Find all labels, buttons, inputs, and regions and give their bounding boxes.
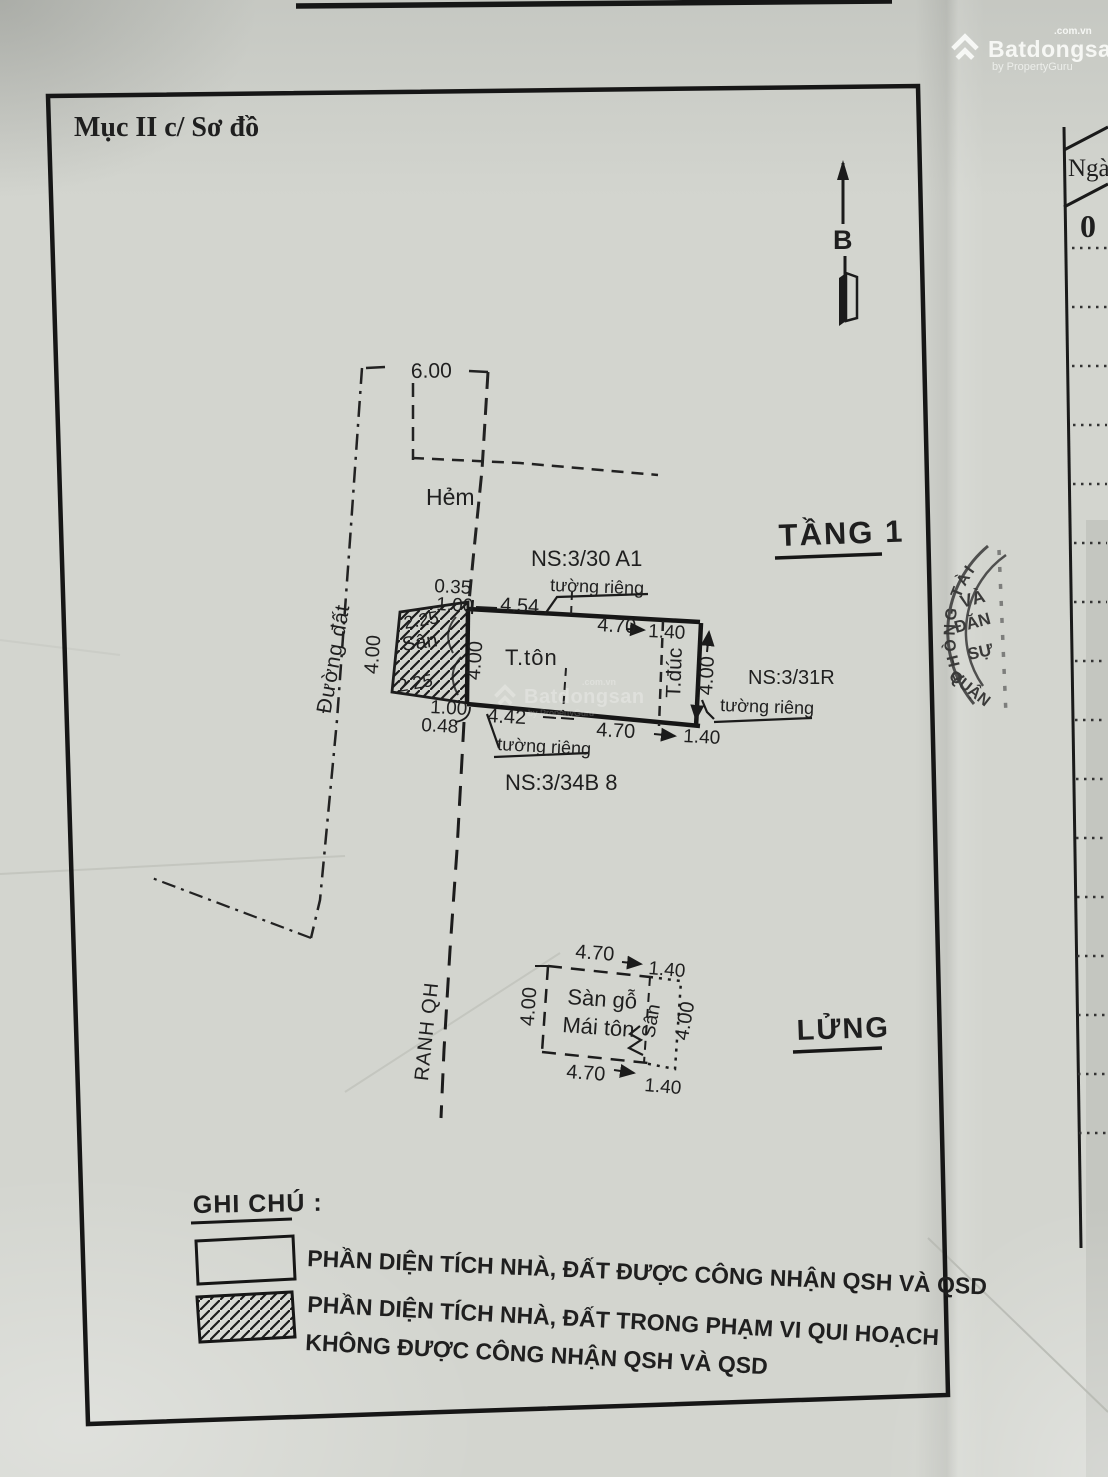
north-arrow-head [837, 160, 849, 180]
section-title: Mục II c/ Sơ đồ [74, 112, 259, 143]
mezzanine-plan: Sàn gỗ Mái tôn Sân 4.70 1.40 4.70 1.40 4… [517, 941, 700, 1099]
side-table-digit: 0 [1080, 208, 1096, 244]
floor1-title: TẦNG 1 [778, 514, 905, 553]
dim-left: 4.00 [361, 634, 386, 674]
dim-top1: 4.54 [500, 594, 540, 618]
stamp-smudge [999, 550, 1006, 715]
mezzanine-title: LỬNG [796, 1010, 890, 1047]
legend-swatch-plain [196, 1236, 295, 1284]
wall-right-label: tường riêng [720, 695, 815, 718]
north-label: B [833, 225, 853, 255]
alley-cross-line [412, 458, 658, 475]
mezz-room-line1: Sàn gỗ [567, 984, 638, 1014]
neighbor-right-label: NS:3/31R [748, 667, 835, 689]
side-table: Ngà 0 [1064, 127, 1108, 1248]
planning-boundary-line [441, 722, 464, 1118]
compass: B [833, 160, 857, 326]
mezz-dim-top2: 1.40 [648, 958, 687, 982]
mezz-dim-bot2: 1.40 [644, 1075, 683, 1099]
dim-top2: 4.70 [597, 614, 637, 638]
batdongsan-watermark-center: .com.vn Batdongsan by PropertyGuru [490, 676, 640, 718]
mezz-dim-top1: 4.70 [575, 941, 615, 966]
diagram-frame [48, 86, 948, 1424]
legend: GHI CHÚ : PHẦN DIỆN TÍCH NHÀ, ĐẤT ĐƯỢC C… [191, 1187, 987, 1379]
batdongsan-logo-icon [946, 28, 984, 66]
neighbor-bottom-label: NS:3/34B 8 [505, 770, 618, 795]
mezzanine-title-underline [793, 1048, 882, 1052]
side-table-header: Ngà [1068, 155, 1108, 182]
top-rule [296, 1, 892, 6]
site-plan-floor1: NS:3/30 A1 tường riêng 0.35 1.00 4.54 4.… [361, 546, 835, 795]
legend-title: GHI CHÚ : [193, 1187, 323, 1219]
brand-byline: by PropertyGuru [992, 61, 1073, 73]
dim-right: 4.00 [695, 656, 719, 696]
mezz-yard-label: Sân [638, 1003, 665, 1040]
official-stamp: PHÒNG TÀI VÀ ĐĂN SỰ QUẬN [940, 537, 1016, 715]
alley-label: Hẻm [426, 484, 475, 510]
diagram-canvas: Mục II c/ Sơ đồ Ngà 0 B [0, 0, 1108, 1477]
wall-top-label: tường riêng [550, 575, 645, 598]
room-main-label: T.tôn [505, 645, 558, 670]
stamp-line4: QUẬN [946, 666, 995, 710]
road-branch-line [152, 878, 311, 938]
floor1-title-underline [775, 554, 882, 558]
brand-byline: by PropertyGuru [528, 708, 594, 718]
brand-name: Batdongsan [988, 36, 1108, 63]
neighbor-top-label: NS:3/30 A1 [531, 546, 642, 571]
dim-bot3: 1.40 [683, 726, 721, 749]
legend-swatch-hatched [197, 1292, 295, 1342]
compass-fletch-outline [846, 273, 857, 321]
road-label: Đường đất [313, 603, 355, 716]
mezz-dim-right: 4.00 [671, 1000, 699, 1042]
batdongsan-watermark-top: .com.vn Batdongsan by PropertyGuru [946, 26, 1106, 72]
brand-name: Batdongsan [524, 686, 645, 709]
dim-bot2: 4.70 [596, 719, 636, 743]
alley-width-tick-l [366, 367, 385, 368]
room-right-label: T.đúc [662, 647, 687, 698]
alley-width-label: 6.00 [411, 359, 452, 383]
scanned-cadastral-sheet: Mục II c/ Sơ đồ Ngà 0 B [0, 0, 1108, 1477]
alley-width-tick-r [469, 371, 488, 372]
dim-off-bot2: 0.48 [421, 715, 459, 738]
dim-top3: 1.40 [648, 621, 686, 644]
dim-off-top2: 1.00 [436, 594, 474, 617]
legend-item1-text: PHẦN DIỆN TÍCH NHÀ, ĐẤT ĐƯỢC CÔNG NHẬN Q… [307, 1244, 988, 1299]
mezz-room-line2: Mái tôn [562, 1012, 636, 1042]
batdongsan-logo-icon [490, 680, 520, 710]
stamp-line3: SỰ [966, 640, 996, 664]
dim-inner-left: 4.00 [463, 640, 488, 680]
mezz-dim-bot1: 4.70 [566, 1061, 606, 1086]
mezz-dim-left: 4.00 [517, 986, 542, 1026]
